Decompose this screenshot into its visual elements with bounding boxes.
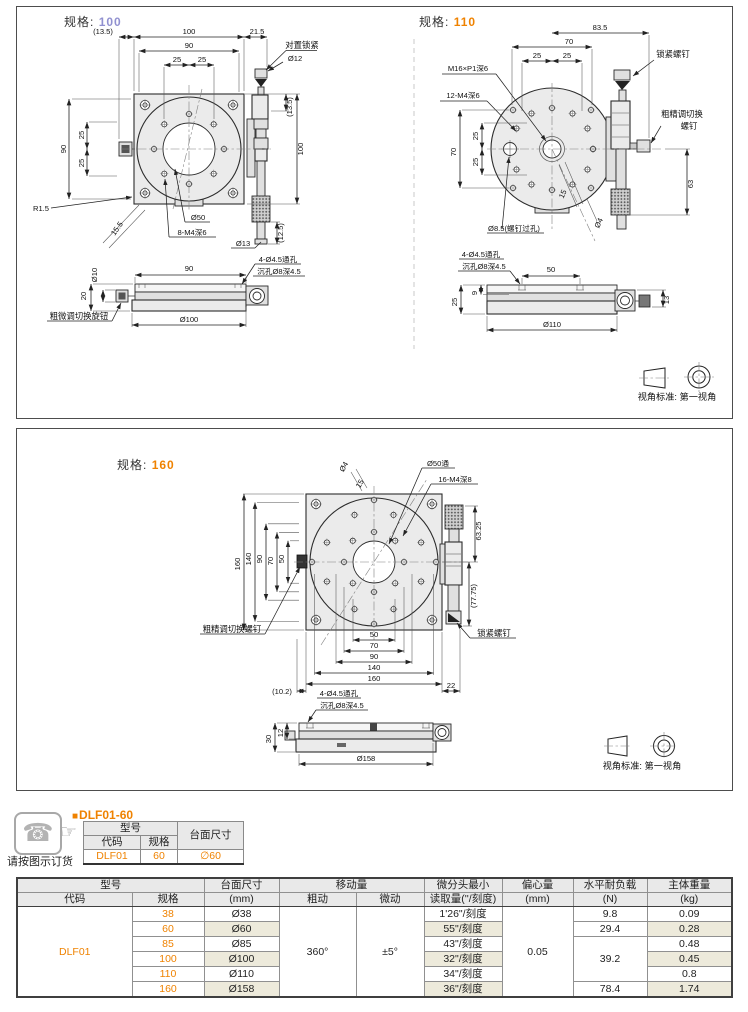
dim-25-left: 25 <box>471 132 480 140</box>
dim-13: 13 <box>662 296 671 304</box>
order-model: DLF01-60 <box>79 808 133 822</box>
header-weight-1: 主体重量 <box>647 878 732 893</box>
dim-25: 25 <box>173 55 181 64</box>
cell-spec: 38 <box>132 907 204 922</box>
header-micro-1: 微分头最小 <box>424 878 502 893</box>
view-standard-label: 视角标准: 第一视角 <box>603 760 682 771</box>
order-spec-value: 60 <box>141 850 178 865</box>
cell-weight: 0.45 <box>647 952 732 967</box>
header-spec: 规格 <box>132 893 204 907</box>
dim-160-left: 160 <box>233 558 242 571</box>
dim-50-left: 50 <box>277 555 286 563</box>
header-coarse: 粗动 <box>279 893 356 907</box>
cell-load: 29.4 <box>573 922 647 937</box>
cell-weight: 0.09 <box>647 907 732 922</box>
spec-value-110: 110 <box>454 15 476 29</box>
order-code-value: DLF01 <box>84 850 141 865</box>
header-micro-2: 读取量(''/刻度) <box>424 893 502 907</box>
label-through-holes: 4-Ø4.5通孔 <box>320 688 359 698</box>
dim-dia50: Ø50 <box>191 213 205 222</box>
cell-weight: 0.28 <box>647 922 732 937</box>
cell-size: Ø85 <box>204 937 279 952</box>
order-size-value: ∅60 <box>178 850 244 865</box>
dim-70: 70 <box>565 37 573 46</box>
cell-size: Ø60 <box>204 922 279 937</box>
order-col-size: 台面尺寸 <box>178 822 244 850</box>
dim-90-bottom: 90 <box>370 652 378 661</box>
spec-label: 规格: <box>117 458 147 472</box>
dim-12-5: (12.5) <box>276 223 285 243</box>
drawing-panel-160: 160 140 90 70 50 Ø4 15 Ø50通 16-M4深8 63.2… <box>16 428 733 791</box>
dim-83-5: 83.5 <box>593 23 608 32</box>
dim-70-left: 70 <box>449 148 458 156</box>
cell-size: Ø158 <box>204 982 279 998</box>
spec-value-160: 160 <box>152 458 175 472</box>
dim-22: 22 <box>447 681 455 690</box>
cell-size: Ø38 <box>204 907 279 922</box>
dim-63-25: 63.25 <box>474 521 483 540</box>
label-12-m4: 12-M4深6 <box>446 91 479 100</box>
spec-label: 规格: <box>419 15 449 29</box>
label-counterbore: 沉孔Ø8深4.5 <box>462 262 505 271</box>
header-ecc-2: (mm) <box>502 893 573 907</box>
cell-reading: 34"/刻度 <box>424 967 502 982</box>
dim-50: 50 <box>547 265 555 274</box>
dim-dia4: Ø4 <box>337 460 350 473</box>
dim-70-left: 70 <box>266 557 275 565</box>
dim-77-75: (77.75) <box>469 583 478 608</box>
cell-fine: ±5° <box>356 907 424 998</box>
spec160-side-view: 4-Ø4.5通孔 沉孔Ø8深4.5 12 30 Ø158 <box>264 688 451 766</box>
header-model: 型号 <box>17 878 204 893</box>
dim-25-left: 25 <box>77 131 86 139</box>
cell-code: DLF01 <box>17 907 132 998</box>
dim-90-side: 90 <box>185 264 193 273</box>
dim-50-bottom: 50 <box>370 630 378 639</box>
dim-21-5: 21.5 <box>250 27 265 36</box>
dim-30: 30 <box>264 735 273 743</box>
label-dia8-5: Ø8.5(螺钉过孔) <box>488 223 540 233</box>
cell-size: Ø110 <box>204 967 279 982</box>
dim-100: 100 <box>183 27 196 36</box>
dim-25-left: 25 <box>471 158 480 166</box>
cell-spec: 160 <box>132 982 204 998</box>
specification-table: 型号 台面尺寸 移动量 微分头最小 偏心量 水平耐负载 主体重量 代码 规格 (… <box>16 877 733 998</box>
dim-12: 12 <box>276 729 285 737</box>
cell-load: 39.2 <box>573 937 647 982</box>
cell-weight: 0.48 <box>647 937 732 952</box>
coarse-fine-screw <box>297 555 307 568</box>
dim-dia13: Ø13 <box>236 239 250 248</box>
header-fine: 微动 <box>356 893 424 907</box>
header-size-2: (mm) <box>204 893 279 907</box>
header-size-1: 台面尺寸 <box>204 878 279 893</box>
dim-dia4: Ø4 <box>593 216 605 229</box>
cell-spec: 60 <box>132 922 204 937</box>
micrometer-head <box>440 505 463 624</box>
dim-90: 90 <box>185 41 193 50</box>
label-lock-screw: 锁紧螺钉 <box>656 49 690 59</box>
bullet-icon: ■ <box>72 811 78 822</box>
dim-dia100: Ø100 <box>180 315 199 324</box>
header-code: 代码 <box>17 893 132 907</box>
cell-weight: 0.8 <box>647 967 732 982</box>
dim-dia12: Ø12 <box>288 54 302 63</box>
order-col-model: 型号 <box>84 822 178 836</box>
label-adjust-screw-2: 螺钉 <box>681 121 698 131</box>
cell-reading: 55"/刻度 <box>424 922 502 937</box>
label-lock-screw: 锁紧螺钉 <box>477 628 511 638</box>
dim-100-right: 100 <box>296 143 305 156</box>
micrometer-head <box>606 70 650 229</box>
dim-140-bottom: 140 <box>368 663 381 672</box>
dim-dia158: Ø158 <box>357 754 376 763</box>
spec100-top-view: (13.5) 100 21.5 90 25 25 90 25 25 对置锁紧 Ø… <box>33 27 319 248</box>
cell-eccentricity: 0.05 <box>502 907 573 998</box>
table-row: DLF01 38 Ø38 360° ±5° 1'26"/刻度 0.05 9.8 … <box>17 907 732 922</box>
order-example-table: 型号 台面尺寸 代码 规格 DLF01 60 ∅60 <box>83 821 244 865</box>
dim-25: 25 <box>533 51 541 60</box>
view-angle-symbol: 视角标准: 第一视角 <box>603 732 682 771</box>
micrometer-head <box>247 69 270 244</box>
label-adjust-knob: 粗微调切换旋钮 <box>50 311 109 321</box>
drawing-panel-100-110: (13.5) 100 21.5 90 25 25 90 25 25 对置锁紧 Ø… <box>16 6 733 419</box>
phone-icon: ☎ <box>22 819 53 847</box>
technical-drawing-100-110: (13.5) 100 21.5 90 25 25 90 25 25 对置锁紧 Ø… <box>17 7 729 415</box>
cell-weight: 1.74 <box>647 982 732 998</box>
header-travel: 移动量 <box>279 878 424 893</box>
dim-63: 63 <box>686 180 695 188</box>
cell-reading: 43"/刻度 <box>424 937 502 952</box>
label-through-holes: 4-Ø4.5通孔 <box>259 254 298 264</box>
technical-drawing-160: 160 140 90 70 50 Ø4 15 Ø50通 16-M4深8 63.2… <box>17 429 729 787</box>
spec160-top-view: 160 140 90 70 50 Ø4 15 Ø50通 16-M4深8 63.2… <box>200 458 516 696</box>
dim-13-5-right: (13.5) <box>285 97 294 117</box>
dim-dia110: Ø110 <box>543 320 561 329</box>
label-16-m4: 16-M4深8 <box>438 475 471 484</box>
dim-25: 25 <box>563 51 571 60</box>
cell-spec: 110 <box>132 967 204 982</box>
cell-reading: 1'26"/刻度 <box>424 907 502 922</box>
dim-20: 20 <box>79 292 88 300</box>
label-adjust-screw: 粗精调切换螺钉 <box>203 624 262 634</box>
spec-title-160: 规格: 160 <box>117 456 175 473</box>
dim-9: 9 <box>470 291 479 295</box>
dim-160-bottom: 160 <box>368 674 381 683</box>
dim-25: 25 <box>198 55 206 64</box>
header-ecc-1: 偏心量 <box>502 878 573 893</box>
header-weight-2: (kg) <box>647 893 732 907</box>
label-m16-thread: M16×P1深6 <box>448 64 488 73</box>
cell-spec: 100 <box>132 952 204 967</box>
spec-title-100: 规格: 100 <box>64 13 122 30</box>
order-phone-box: ☎ <box>14 812 62 855</box>
order-example-heading: ■DLF01-60 <box>72 808 133 822</box>
dim-70-bottom: 70 <box>370 641 378 650</box>
spec-value-100: 100 <box>99 15 122 29</box>
cell-load: 9.8 <box>573 907 647 922</box>
label-counterbore: 沉孔Ø8深4.5 <box>257 267 300 276</box>
dim-r1-5: R1.5 <box>33 204 49 213</box>
spec-label: 规格: <box>64 15 94 29</box>
cell-reading: 32"/刻度 <box>424 952 502 967</box>
label-adjust-screw-1: 粗精调切换 <box>661 109 703 119</box>
cell-spec: 85 <box>132 937 204 952</box>
cell-size: Ø100 <box>204 952 279 967</box>
spec100-side-view: 90 Ø10 20 4-Ø4.5通孔 沉孔Ø8深4.5 Ø100 粗微调切换旋钮 <box>47 254 305 327</box>
cell-coarse: 360° <box>279 907 356 998</box>
label-counterbore: 沉孔Ø8深4.5 <box>320 701 363 710</box>
view-angle-symbol: 视角标准: 第一视角 <box>638 362 717 402</box>
label-dia50-through: Ø50通 <box>427 458 449 468</box>
dim-10-2: (10.2) <box>272 687 292 696</box>
spec-title-110: 规格: 110 <box>419 13 476 30</box>
label-through-holes: 4-Ø4.5通孔 <box>462 249 501 259</box>
spec110-side-view: 4-Ø4.5通孔 沉孔Ø8深4.5 50 25 9 13 Ø110 <box>450 249 671 332</box>
cell-load: 78.4 <box>573 982 647 998</box>
order-col-code: 代码 <box>84 836 141 850</box>
pointing-hand-icon: ☞ <box>60 821 77 844</box>
view-standard-label: 视角标准: 第一视角 <box>638 391 717 402</box>
label-opposite-lock: 对置锁紧 <box>285 40 319 50</box>
dim-dia10: Ø10 <box>90 268 99 282</box>
dim-90-left: 90 <box>59 145 68 153</box>
dim-140-left: 140 <box>244 553 253 566</box>
cell-reading: 36"/刻度 <box>424 982 502 998</box>
dim-25-side: 25 <box>450 298 459 306</box>
header-load-1: 水平耐负载 <box>573 878 647 893</box>
header-load-2: (N) <box>573 893 647 907</box>
dim-8-m4: 8-M4深6 <box>177 228 206 237</box>
dim-90-left: 90 <box>255 555 264 563</box>
dim-25-left: 25 <box>77 159 86 167</box>
order-col-spec: 规格 <box>141 836 178 850</box>
spec110-top-view: 83.5 70 25 25 M16×P1深6 12-M4深6 锁紧螺钉 粗精调切… <box>440 23 704 241</box>
